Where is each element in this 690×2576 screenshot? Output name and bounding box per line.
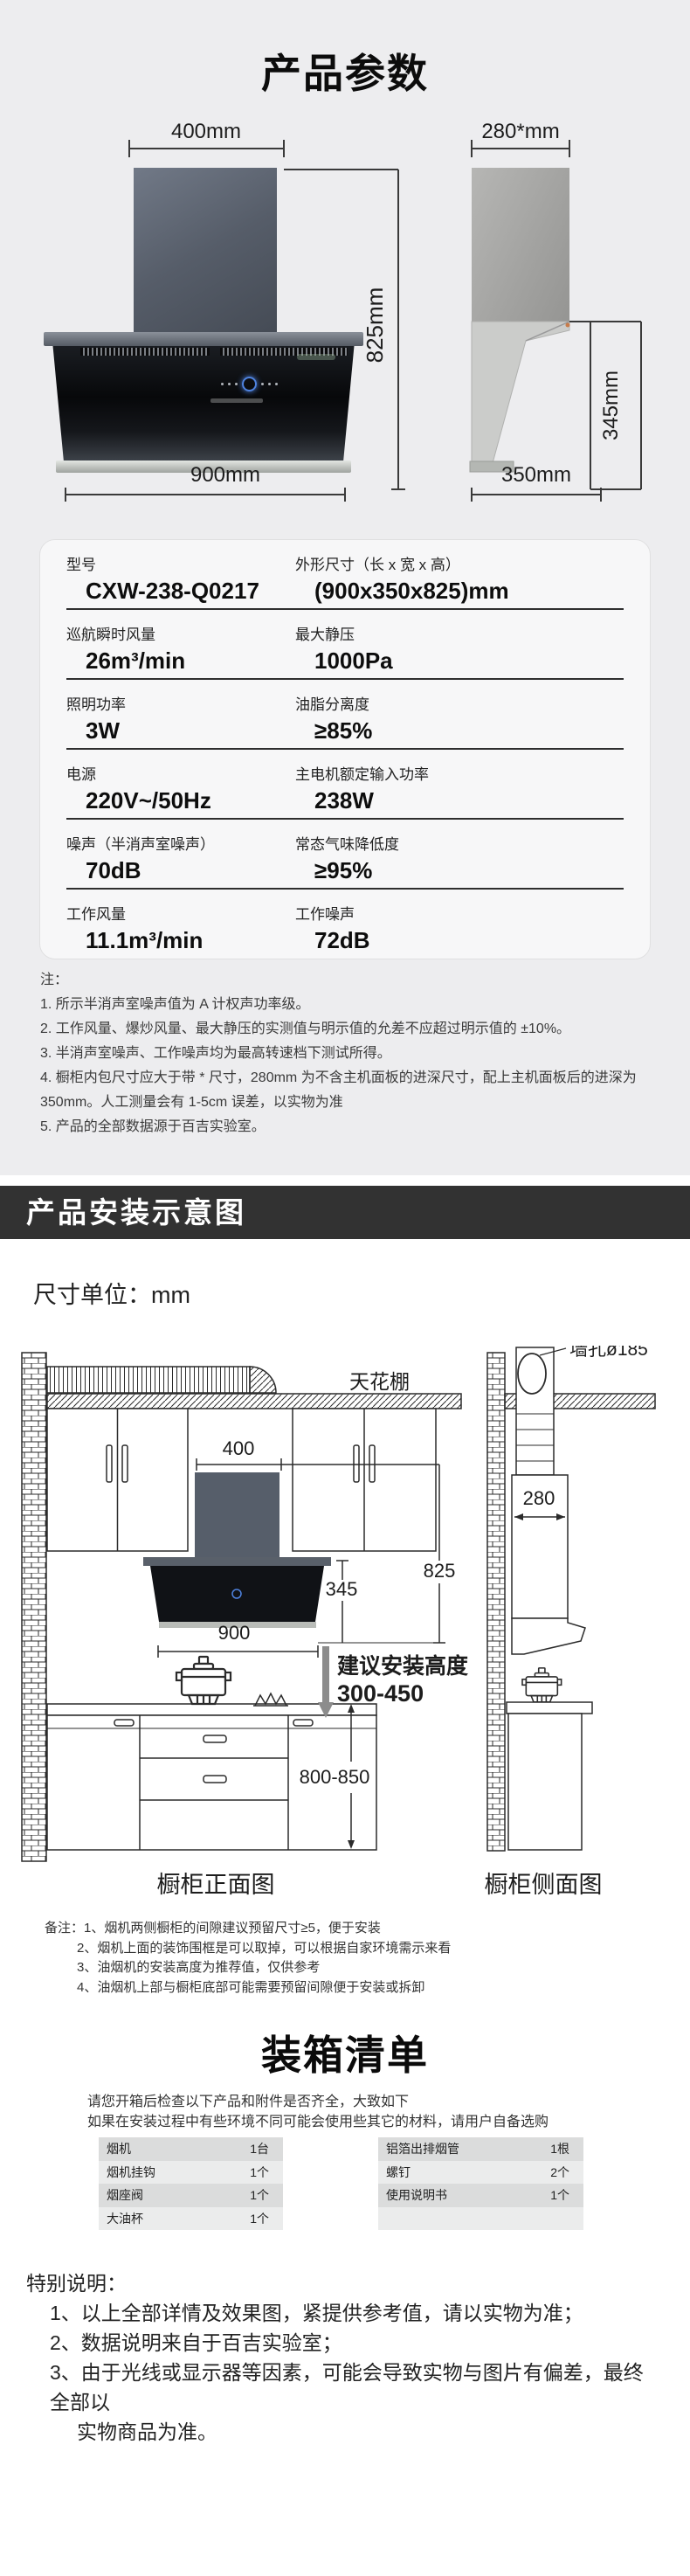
spec-value: 220V~/50Hz [66,787,295,814]
spec-label: 常态气味降低度 [295,832,650,854]
note-item: 3. 半消声室噪声、工作噪声均为最高转速档下测试所得。 [40,1042,652,1066]
packing-table-right: 铝箔出排烟管1根 螺钉2个 使用说明书1个 [378,2137,583,2230]
packing-item: 烟座阀 [107,2186,143,2204]
packing-item: 使用说明书 [386,2186,447,2204]
special-item: 2、数据说明来自于百吉实验室； [50,2328,655,2358]
packing-row: 螺钉2个 [378,2161,583,2185]
spec-value: 26m³/min [66,647,295,675]
install-banner: 产品安装示意图 [0,1186,690,1239]
packing-title: 装箱清单 [0,2024,690,2081]
note-item: 2. 工作风量、爆炒风量、最大静压的实测值与明示值的允差不应超过明示值的 ±10… [40,1017,652,1042]
spec-label: 最大静压 [295,622,650,644]
packing-table-left: 烟机1台 烟机挂钩1个 烟座阀1个 大油杯1个 [99,2137,283,2230]
remark-item: 2、烟机上面的装饰围框是可以取掉，可以根据自家环境需示来看 [77,1939,586,1959]
counter-height-label: 800-850 [300,1766,370,1788]
notes-heading: 注： [40,968,652,993]
dim-280mm-label: 280*mm [481,120,559,143]
diagram-dim-280: 280 [523,1487,555,1509]
spec-label: 照明功率 [66,692,295,714]
spec-label: 型号 [66,552,295,574]
special-item: 1、以上全部详情及效果图，紧提供参考值，请以实物为准； [50,2298,655,2328]
front-view-caption: 橱柜正面图 [157,1872,275,1898]
dim-400mm-label: 400mm [171,120,241,143]
spec-value: 3W [66,717,295,744]
remark-item: 4、油烟机上部与橱柜底部可能需要预留间隙便于安装或拆卸 [77,1978,586,1998]
side-view-caption: 橱柜侧面图 [485,1872,603,1898]
dim-825mm-label: 825mm [362,287,388,364]
note-item: 1. 所示半消声室噪声值为 A 计权声功率级。 [40,993,652,1017]
packing-qty: 2个 [550,2164,569,2181]
packing-qty: 1个 [550,2186,569,2204]
packing-qty: 1个 [250,2186,269,2204]
install-banner-title: 产品安装示意图 [26,1186,246,1239]
diagram-dim-345: 345 [326,1578,358,1600]
packing-qty: 1个 [250,2164,269,2181]
packing-item: 螺钉 [386,2164,411,2181]
remark-item: 备注：1、烟机两侧橱柜的间隙建议预留尺寸≥5，便于安装 [45,1919,586,1939]
side-figure [487,1347,655,1851]
spec-row: 巡航瞬时风量26m³/min 最大静压1000Pa [40,610,650,680]
packing-row [378,2207,583,2231]
remark-item: 3、油烟机的安装高度为推荐值，仅供参考 [77,1958,586,1978]
spec-label: 工作噪声 [295,902,650,924]
special-item: 3、由于光线或显示器等因素，可能会导致实物与图片有偏差，最终全部以 [50,2358,655,2417]
unit-note: 尺寸单位：mm [33,1276,190,1310]
spec-value: ≥85% [295,717,650,744]
packing-row: 烟机挂钩1个 [99,2161,283,2185]
packing-item: 大油杯 [107,2210,143,2227]
packing-qty: 1个 [250,2210,269,2227]
spec-value: 238W [295,787,650,814]
spec-table: 型号CXW-238-Q0217 外形尺寸（长 x 宽 x 高）(900x350x… [39,539,651,959]
packing-item: 铝箔出排烟管 [386,2140,459,2157]
packing-item: 烟机挂钩 [107,2164,155,2181]
note-item: 5. 产品的全部数据源于百吉实验室。 [40,1115,652,1139]
spec-row: 照明功率3W 油脂分离度≥85% [40,680,650,750]
product-detail-page: 产品参数 400mm 825mm 900mm [0,0,690,2576]
dim-900mm-label: 900mm [190,463,260,487]
spec-label: 外形尺寸（长 x 宽 x 高） [295,552,650,574]
spec-row: 型号CXW-238-Q0217 外形尺寸（长 x 宽 x 高）(900x350x… [40,540,650,610]
dim-350mm-label: 350mm [501,463,571,487]
spec-value: ≥95% [295,857,650,884]
packing-row: 大油杯1个 [99,2207,283,2231]
spec-row: 工作风量11.1m³/min 工作噪声72dB [40,890,650,959]
packing-intro-line: 如果在安装过程中有些环境不同可能会使用些其它的材料，请用户自备选购 [87,2112,549,2132]
diagram-dim-825: 825 [424,1560,456,1582]
ceiling-label: 天花棚 [349,1370,410,1393]
packing-row: 烟机1台 [99,2137,283,2161]
front-figure [22,1353,461,1861]
special-notes-block: 特别说明： 1、以上全部详情及效果图，紧提供参考值，请以实物为准； 2、数据说明… [26,2268,655,2447]
special-item: 实物商品为准。 [77,2417,655,2447]
install-height-range: 300-450 [337,1680,424,1707]
spec-label: 工作风量 [66,902,295,924]
spec-value: 1000Pa [295,647,650,675]
diagram-dim-900: 900 [218,1622,251,1644]
packing-row: 使用说明书1个 [378,2184,583,2207]
packing-intro: 请您开箱后检查以下产品和附件是否齐全，大致如下 如果在安装过程中有些环境不同可能… [87,2092,549,2132]
spec-label: 噪声（半消声室噪声） [66,832,295,854]
packing-intro-line: 请您开箱后检查以下产品和附件是否齐全，大致如下 [87,2092,549,2112]
remarks-block: 备注：1、烟机两侧橱柜的间隙建议预留尺寸≥5，便于安装 2、烟机上面的装饰围框是… [45,1919,586,1998]
spec-row: 噪声（半消声室噪声）70dB 常态气味降低度≥95% [40,820,650,890]
special-heading: 特别说明： [26,2268,655,2298]
diagram-dim-400: 400 [223,1437,255,1459]
notes-block: 注： 1. 所示半消声室噪声值为 A 计权声功率级。 2. 工作风量、爆炒风量、… [40,968,652,1139]
spec-value: 72dB [295,927,650,954]
spec-row: 电源220V~/50Hz 主电机额定输入功率238W [40,750,650,820]
spec-label: 油脂分离度 [295,692,650,714]
packing-qty: 1台 [250,2140,269,2157]
packing-row: 铝箔出排烟管1根 [378,2137,583,2161]
install-diagram: 天花棚 墙孔ø185 400 280 825 345 900 建议安装高度 30… [0,1346,690,1922]
spec-value: CXW-238-Q0217 [66,578,295,605]
spec-value: 70dB [66,857,295,884]
packing-row: 烟座阀1个 [99,2184,283,2207]
spec-value: (900x350x825)mm [295,578,650,605]
spec-label: 主电机额定输入功率 [295,762,650,784]
wall-hole-label: 墙孔ø185 [569,1346,648,1360]
packing-qty: 1根 [550,2140,569,2157]
spec-label: 电源 [66,762,295,784]
packing-item: 烟机 [107,2140,131,2157]
spec-label: 巡航瞬时风量 [66,622,295,644]
install-height-label: 建议安装高度 [337,1653,468,1679]
spec-value: 11.1m³/min [66,927,295,954]
note-item: 4. 橱柜内包尺寸应大于带 * 尺寸，280mm 为不含主机面板的进深尺寸，配上… [40,1066,652,1115]
params-dimensions-overlay: 400mm 825mm 900mm 280*mm 345mm 350mm [0,0,690,524]
dim-345mm-label: 345mm [599,370,623,440]
